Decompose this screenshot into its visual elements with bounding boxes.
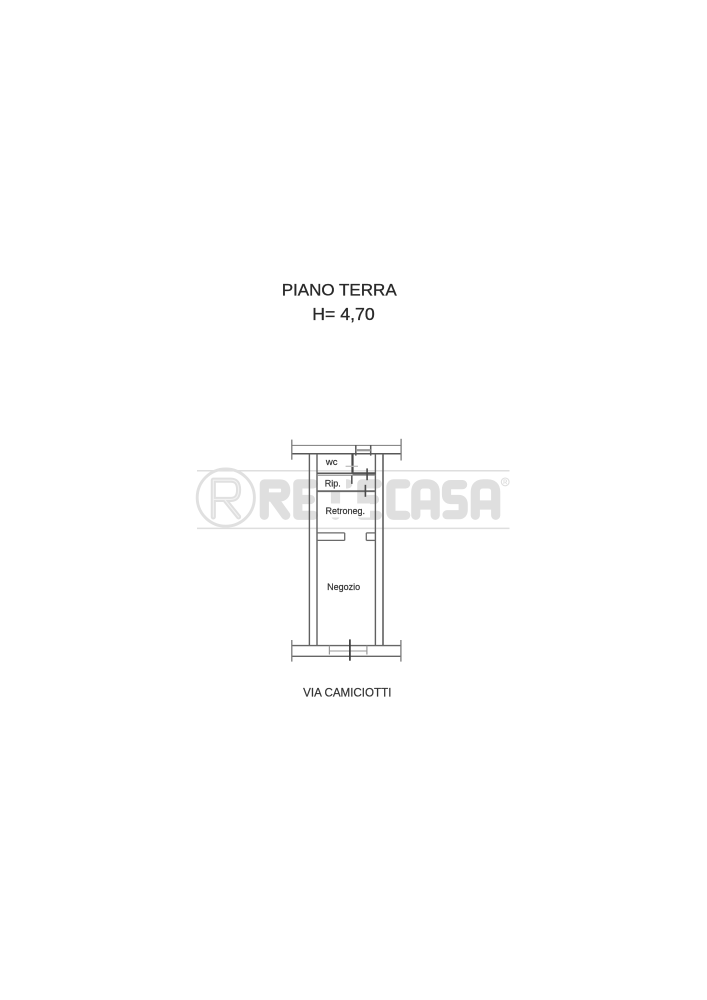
- svg-text:PIANO TERRA: PIANO TERRA: [282, 281, 398, 300]
- svg-text:H= 4,70: H= 4,70: [312, 304, 375, 324]
- svg-text:Negozio: Negozio: [327, 582, 360, 592]
- svg-text:Retroneg.: Retroneg.: [326, 506, 366, 516]
- svg-text:wc: wc: [325, 457, 338, 468]
- svg-text:VIA CAMICIOTTI: VIA CAMICIOTTI: [303, 687, 391, 700]
- svg-text:Rip.: Rip.: [325, 478, 341, 488]
